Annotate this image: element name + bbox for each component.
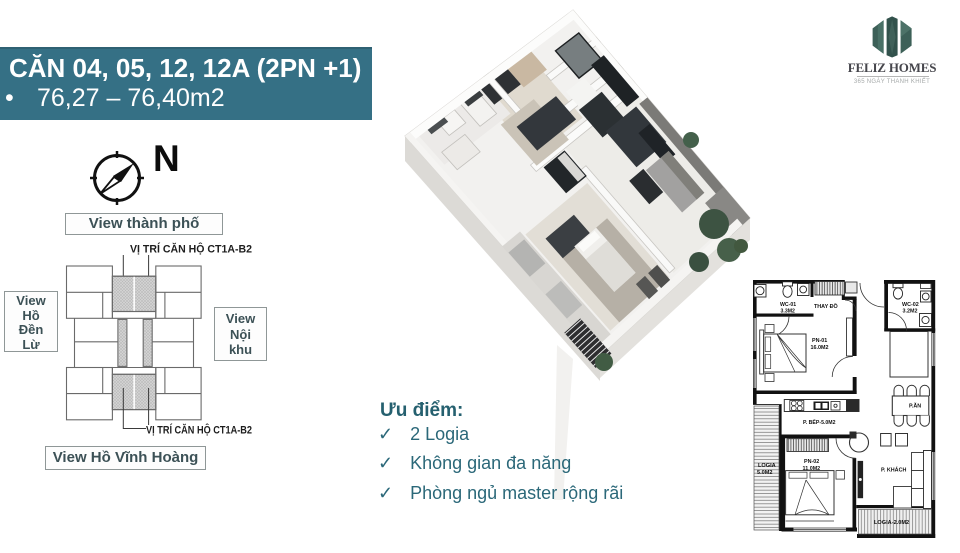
svg-text:3.2M2: 3.2M2 [903, 309, 918, 315]
svg-text:P.ĂN: P.ĂN [909, 403, 921, 410]
svg-text:VỊ TRÍ CĂN HỘ CT1A-B2: VỊ TRÍ CĂN HỘ CT1A-B2 [130, 243, 252, 256]
svg-text:P. KHÁCH: P. KHÁCH [881, 467, 906, 474]
svg-text:WC-01: WC-01 [780, 302, 796, 308]
svg-text:3.3M2: 3.3M2 [781, 309, 796, 315]
svg-text:16.0M2: 16.0M2 [811, 345, 829, 351]
svg-text:VỊ TRÍ CĂN HỘ CT1A-B2: VỊ TRÍ CĂN HỘ CT1A-B2 [146, 424, 252, 437]
svg-text:THAY ĐỒ: THAY ĐỒ [814, 303, 838, 310]
svg-text:PN-01: PN-01 [812, 338, 827, 344]
svg-text:WC-02: WC-02 [902, 302, 919, 308]
svg-text:LOGIA: LOGIA [758, 463, 776, 469]
svg-text:LOGIA-2.0M2: LOGIA-2.0M2 [874, 520, 909, 526]
svg-text:5.0M2: 5.0M2 [757, 470, 773, 476]
svg-text:PN-02: PN-02 [804, 459, 819, 465]
svg-text:P. BẾP-5.0M2: P. BẾP-5.0M2 [803, 419, 836, 426]
